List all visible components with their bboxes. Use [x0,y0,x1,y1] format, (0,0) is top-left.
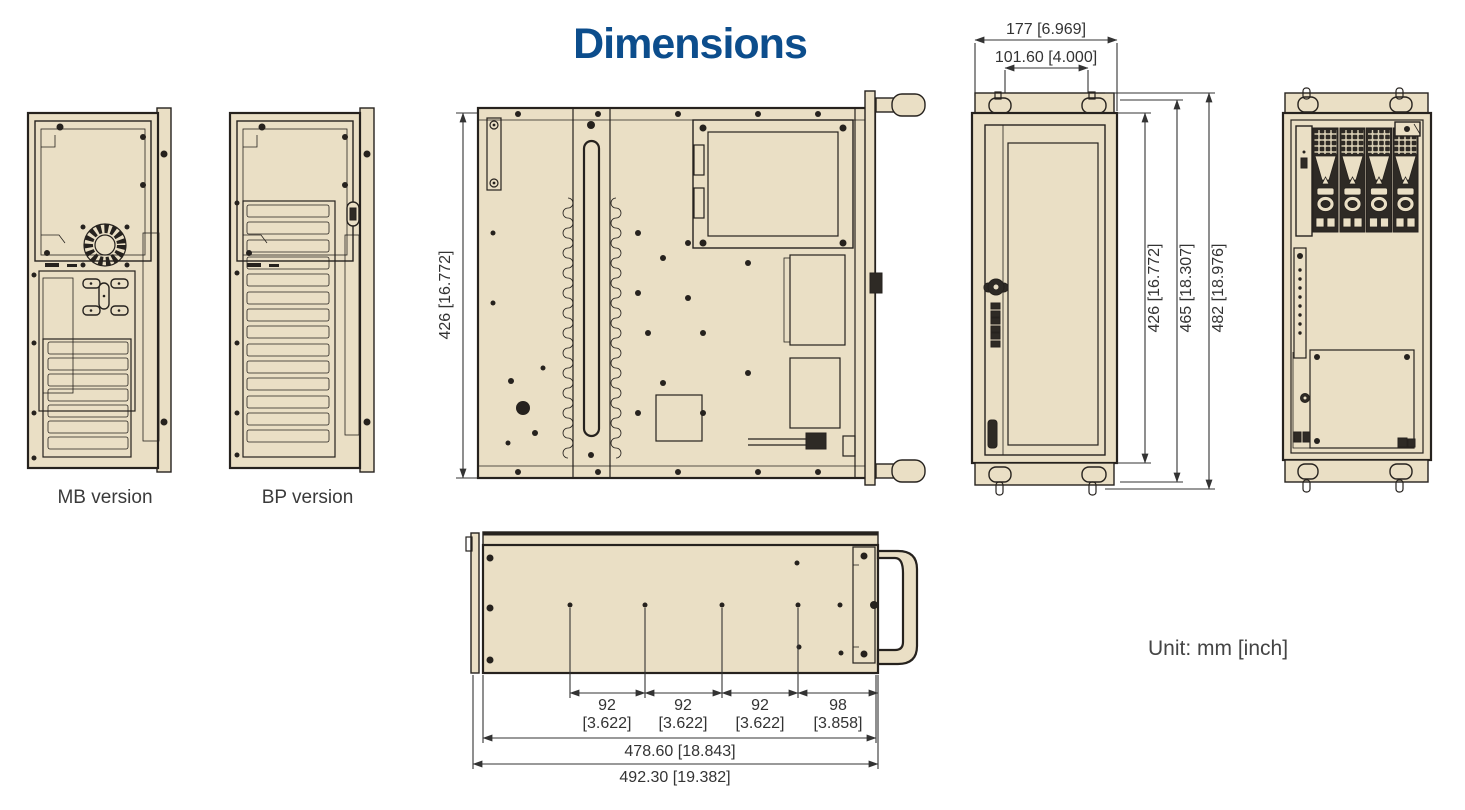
bottom-bracket [975,463,1114,495]
dim-front-mid-height-label: 465 [18.307] [1178,244,1195,333]
dim-span2-mm: 92 [674,697,692,714]
dim-handle-width-label: 101.60 [4.000] [995,49,1097,66]
dimension-handle-width: 101.60 [4.000] [995,49,1097,98]
side-panel [483,545,878,673]
front-door [984,125,1105,455]
dimensions-page: { "title": "Dimensions", "unit_label": "… [0,0,1465,810]
top-view-drawing: 426 [16.772] [432,83,932,493]
front-open-view-drawing [1272,80,1442,510]
top-bracket [1285,88,1428,113]
dimension-front-heights: 426 [16.772] 465 [18.307] 482 [18.976] [1105,93,1227,489]
keylock-icon [870,273,882,293]
dim-span1-inch: [3.622] [583,715,632,732]
odd-bay [1296,126,1312,236]
drive-bay [693,120,853,248]
dim-span3-inch: [3.622] [736,715,785,732]
dim-side-inner-label: 478.60 [18.843] [624,743,735,760]
mb-version-label: MB version [25,487,185,509]
dim-side-total-label: 492.30 [19.382] [619,769,730,786]
bp-version-label: BP version [225,487,390,509]
handle [876,94,925,116]
dim-span4-inch: [3.858] [814,715,863,732]
rear-connector [347,202,359,226]
dim-span1-mm: 92 [598,697,616,714]
front-view-drawing: 177 [6.969] 101.60 [4.000] [955,12,1245,512]
rear-view-bp-drawing [225,103,390,478]
dim-front-width-label: 177 [6.969] [1006,21,1086,38]
dimension-top-depth: 426 [16.772] [437,113,480,478]
top-bracket [975,92,1114,113]
rack-ear [360,108,374,472]
drive-trays [1313,122,1420,232]
dim-front-total-height-label: 482 [18.976] [1210,244,1227,333]
rack-ear [471,533,479,673]
handle [876,460,925,482]
handle [878,551,917,664]
side-view-drawing: 92 [3.622] 92 [3.622] 92 [3.622] 98 [3.8… [455,525,940,800]
dimension-side-total: 492.30 [19.382] [473,764,878,786]
dim-span3-mm: 92 [751,697,769,714]
dim-top-depth-label: 426 [16.772] [437,251,454,340]
psu-area [237,121,353,267]
bottom-bracket [1285,460,1428,492]
power-button [1301,394,1310,403]
dimension-side-inner: 478.60 [18.843] [483,738,876,760]
page-title: Dimensions [573,20,807,69]
dim-span2-inch: [3.622] [659,715,708,732]
dim-span4-mm: 98 [829,697,847,714]
rear-view-mb-drawing [25,103,185,478]
dimension-hole-spans: 92 [3.622] 92 [3.622] 92 [3.622] 98 [3.8… [570,693,878,732]
unit-label: Unit: mm [inch] [1148,637,1288,661]
door-slot [988,420,997,448]
dim-front-inner-height-label: 426 [16.772] [1146,244,1163,333]
